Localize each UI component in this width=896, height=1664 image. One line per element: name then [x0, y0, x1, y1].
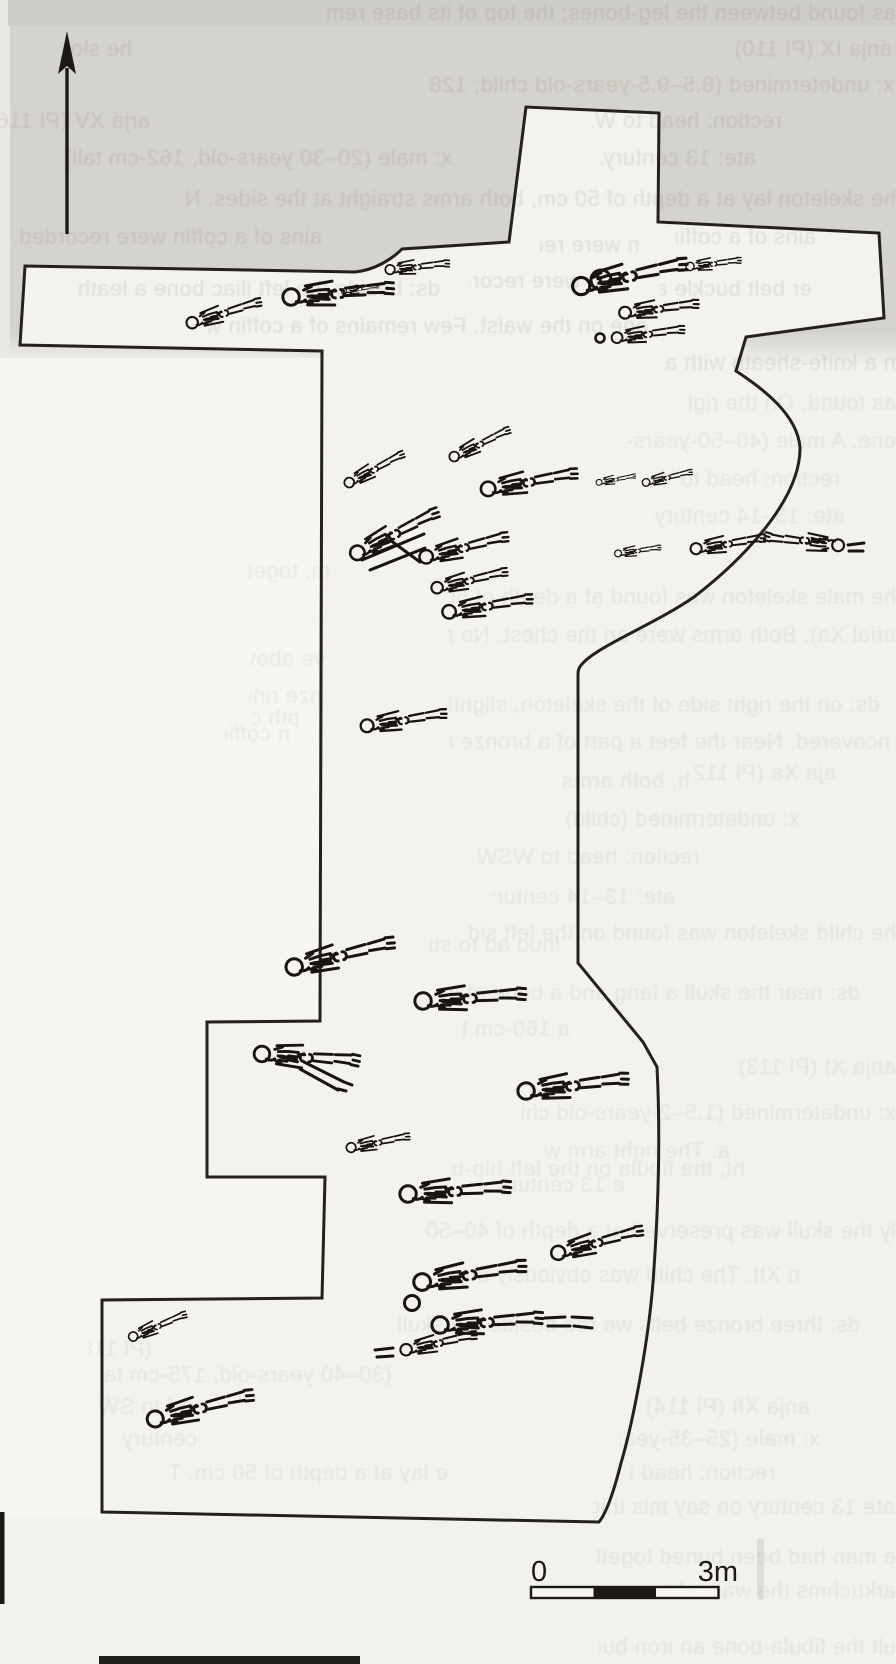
svg-text:0: 0: [531, 1556, 547, 1588]
svg-text:3m: 3m: [698, 1556, 738, 1588]
